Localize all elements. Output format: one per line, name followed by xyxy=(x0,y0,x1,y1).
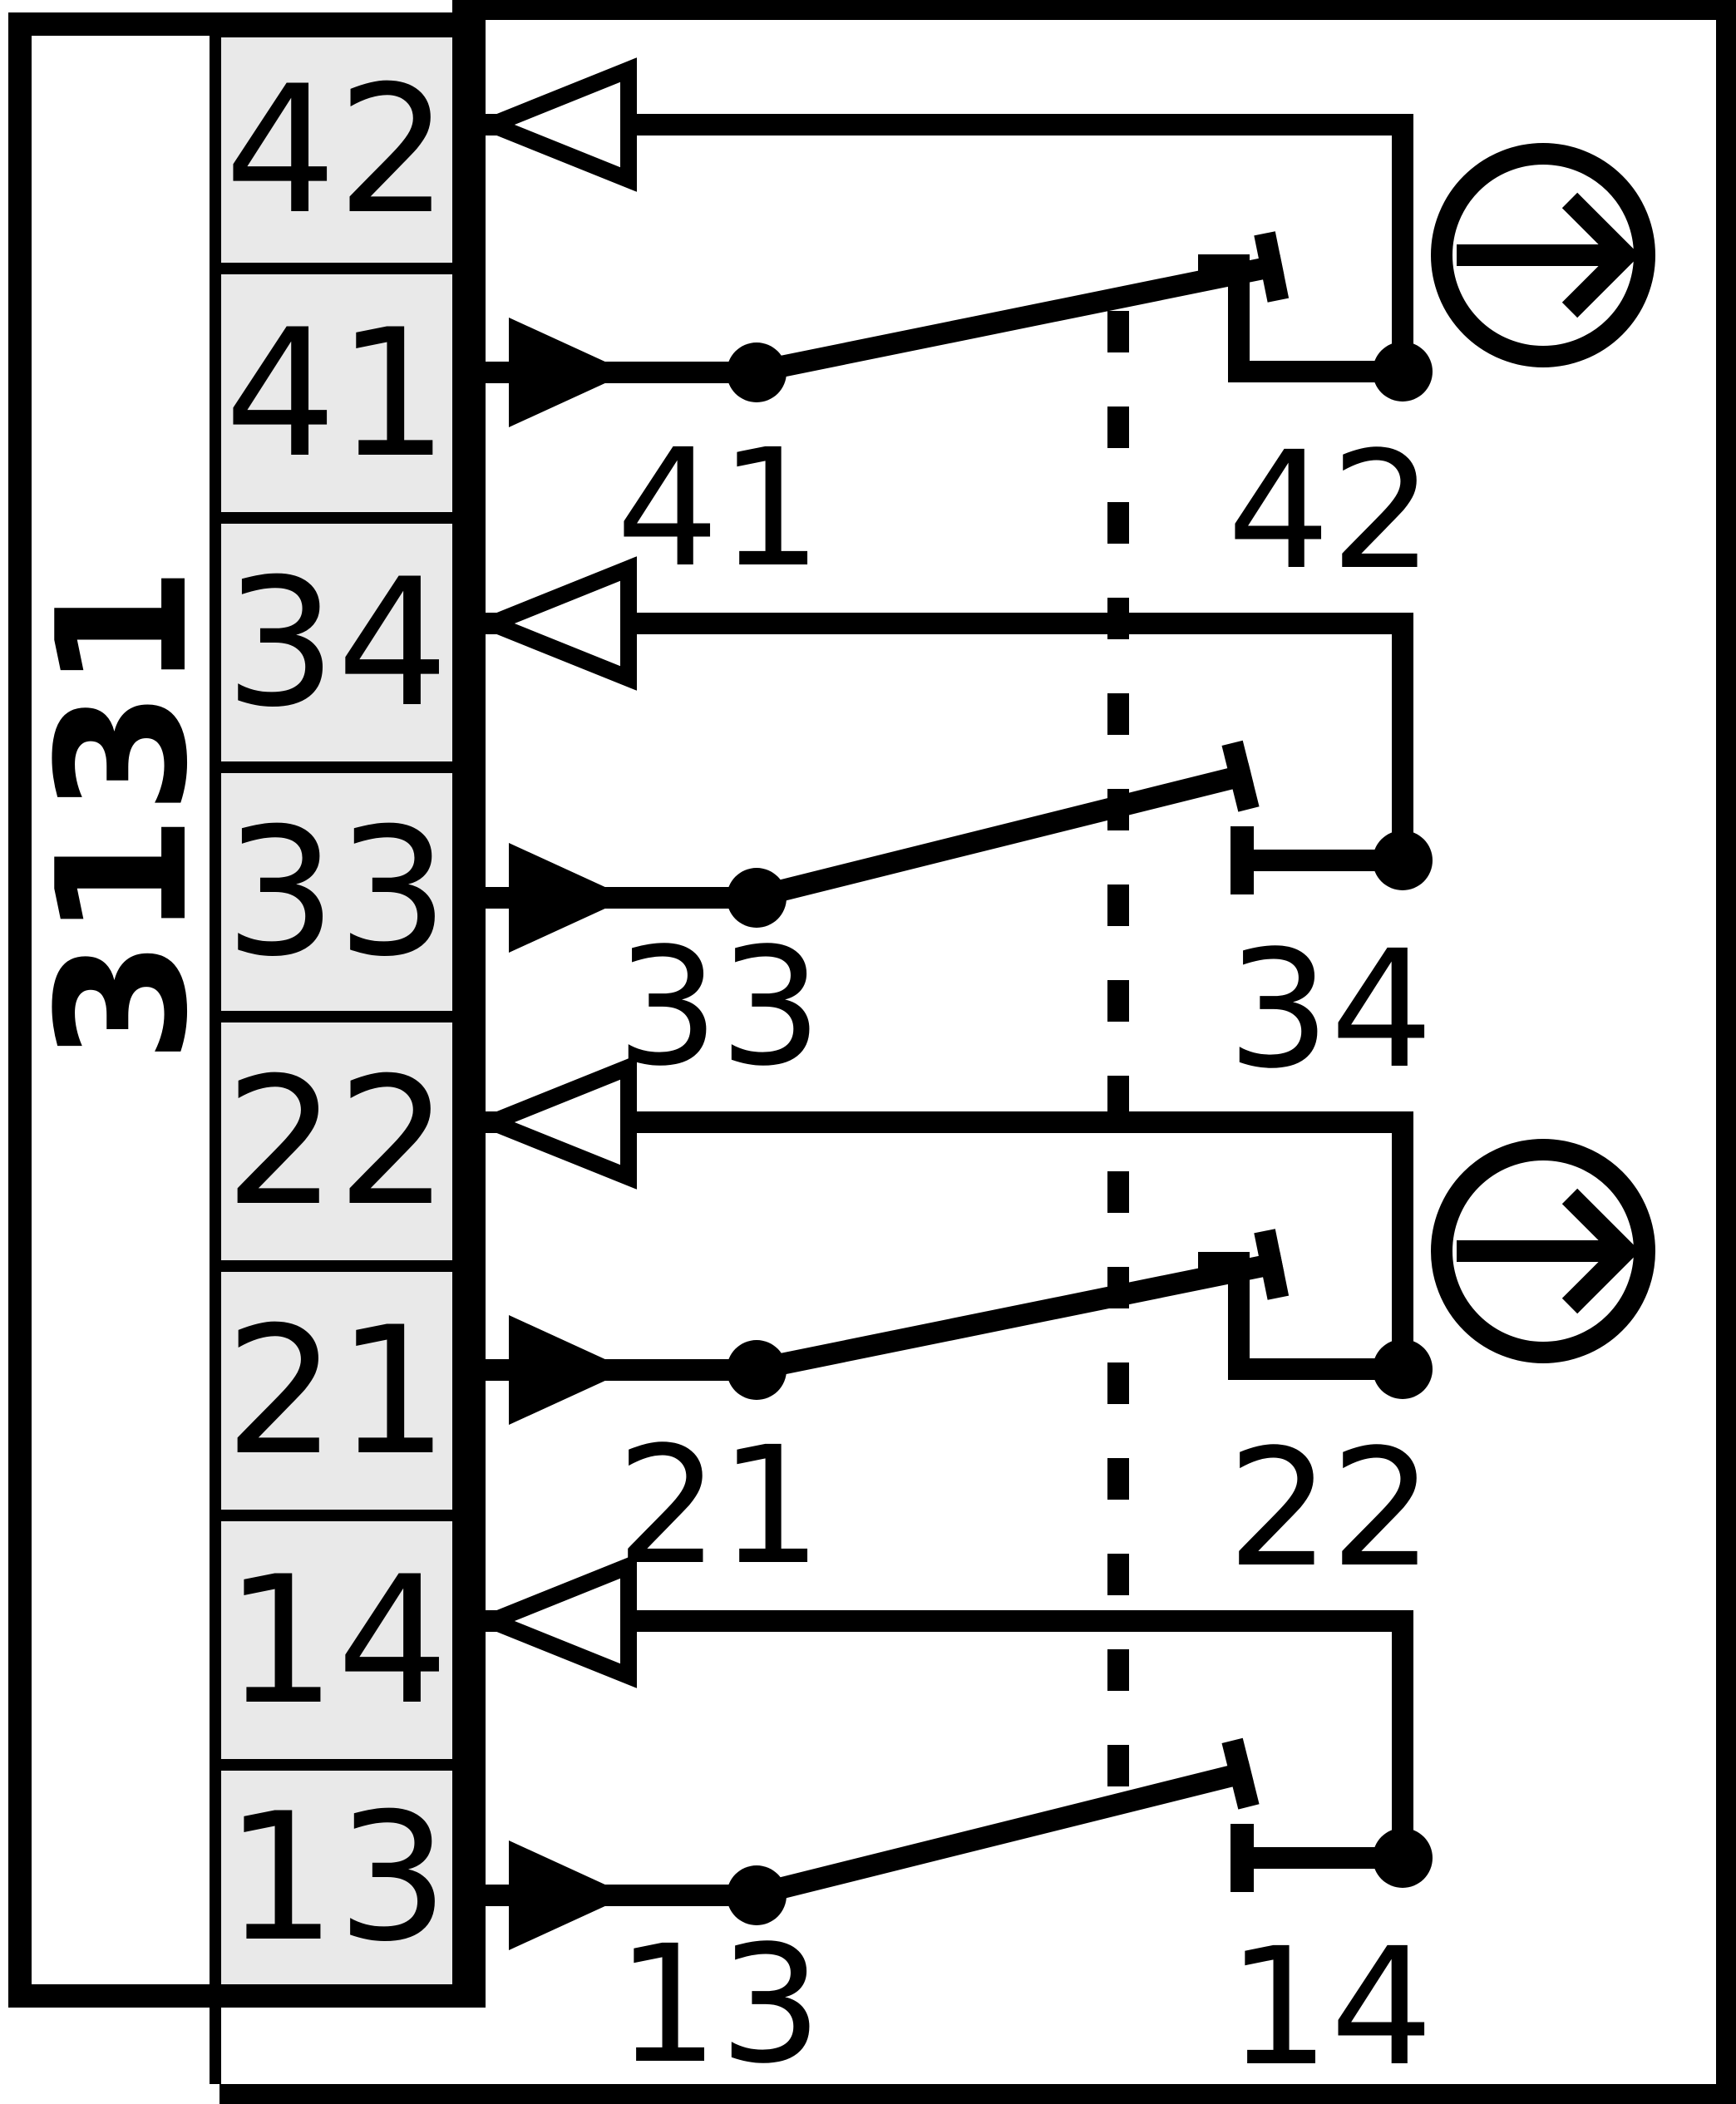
contact-diagram: 3131 42 41 34 33 22 21 14 13 41 42 xyxy=(0,0,1736,2104)
frame-top-border xyxy=(452,0,1736,20)
contact-label-13: 13 xyxy=(594,1922,844,2088)
fixed-contact-dot-34 xyxy=(1373,830,1433,890)
terminal-strip-left-line xyxy=(210,12,221,2084)
output-arrow-icon xyxy=(479,1056,645,1189)
contact-arm-tip-33 xyxy=(1221,741,1259,812)
fixed-contact-dot-14 xyxy=(1373,1828,1433,1888)
contact-arm-21 xyxy=(750,1252,1284,1381)
frame-bottom-border xyxy=(219,2084,1736,2104)
contact-label-22: 22 xyxy=(1206,1426,1455,1592)
contact-label-42: 42 xyxy=(1206,428,1455,594)
terminal-box-21: 21 xyxy=(221,1272,452,1510)
output-arrow-icon xyxy=(479,1555,645,1688)
terminal-box-13: 13 xyxy=(221,1771,452,1984)
terminal-box-34: 34 xyxy=(221,524,452,761)
contact-arm-tip-13 xyxy=(1221,1738,1259,1810)
mechanical-link-dashed-line xyxy=(1107,311,1129,1807)
output-arrow-icon xyxy=(479,557,645,690)
no-fixed-cap-14 xyxy=(1230,1824,1254,1892)
contact-arm-tip-41 xyxy=(1254,231,1289,303)
frame-left-border xyxy=(452,0,486,2008)
terminal-box-22: 22 xyxy=(221,1022,452,1260)
contact-arm-33 xyxy=(750,763,1254,909)
frame-right-border xyxy=(1716,0,1736,2104)
terminal-box-33: 33 xyxy=(221,773,452,1011)
terminal-box-14: 14 xyxy=(221,1521,452,1759)
contact-arm-41 xyxy=(750,254,1284,383)
output-arrow-icon xyxy=(479,58,645,191)
contact-arm-13 xyxy=(750,1761,1254,1906)
terminal-box-41: 41 xyxy=(221,274,452,512)
contact-label-14: 14 xyxy=(1206,1924,1455,2091)
actuation-direction-icon xyxy=(1418,131,1668,380)
no-fixed-cap-34 xyxy=(1230,826,1254,894)
terminal-box-42: 42 xyxy=(221,37,452,263)
contact-arm-tip-21 xyxy=(1254,1229,1289,1300)
contact-label-34: 34 xyxy=(1206,927,1455,1093)
actuation-direction-icon xyxy=(1418,1126,1668,1376)
